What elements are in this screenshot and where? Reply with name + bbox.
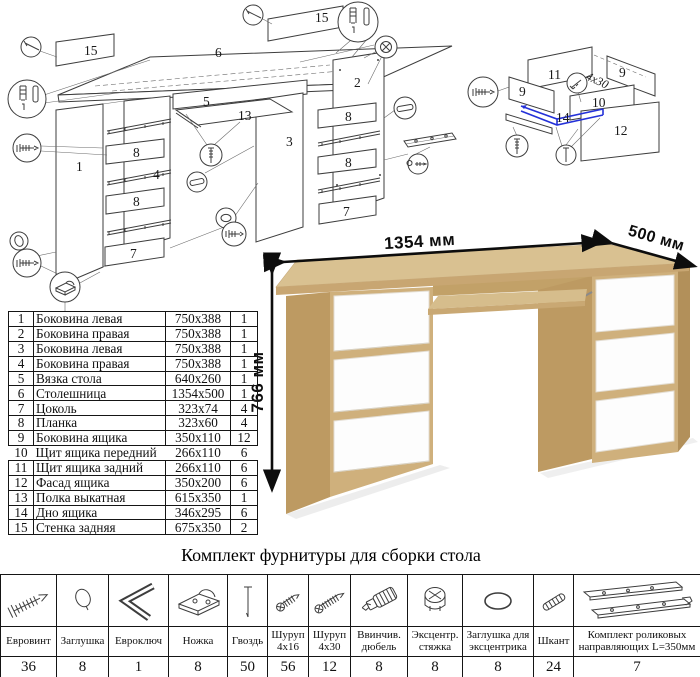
- part-qty: 1: [231, 356, 258, 371]
- part-name: Щит ящика передний: [34, 446, 166, 461]
- confirmat-screw-icon: [3, 577, 55, 625]
- hardware-qty: 50: [228, 657, 268, 677]
- part-qty: 6: [231, 475, 258, 490]
- hardware-name: Заглушка: [57, 627, 109, 657]
- part-number: 10: [9, 446, 34, 461]
- part-number: 13: [9, 490, 34, 505]
- parts-list-row: 4 Боковина правая 750x388 1: [9, 356, 258, 371]
- hardware-qty: 12: [309, 657, 351, 677]
- drawer-slides-icon: [576, 577, 699, 625]
- parts-list-row: 14 Дно ящика 346x295 6: [9, 505, 258, 520]
- callout-screw-4x30: [567, 73, 587, 93]
- part-label-13: 13: [238, 108, 252, 123]
- part-name: Щит ящика задний: [34, 460, 166, 475]
- part-name: Боковина правая: [34, 326, 166, 341]
- part-number: 2: [9, 326, 34, 341]
- hardware-qty: 36: [1, 657, 57, 677]
- foot-icon: [171, 577, 226, 625]
- callout-foot: [50, 272, 80, 302]
- part-size: 750x388: [166, 326, 231, 341]
- callout-dowel-cap: [8, 80, 46, 118]
- part-size: 640x260: [166, 371, 231, 386]
- part-label-8-l1: 8: [133, 145, 140, 160]
- part-name: Боковина левая: [34, 341, 166, 356]
- callout-nail-top: [243, 5, 263, 25]
- hardware-qty-row: 36 8 1 8 50 56 12 8 8 8 24 7: [1, 657, 700, 677]
- part-label-11: 11: [548, 67, 561, 82]
- part-qty: 4: [231, 416, 258, 431]
- small-screw-icon: [270, 577, 307, 625]
- part-qty: 4: [231, 401, 258, 416]
- part-name: Вязка стола: [34, 371, 166, 386]
- part-label-12: 12: [614, 123, 628, 138]
- cam-cap-icon: [465, 577, 532, 625]
- part-number: 8: [9, 416, 34, 431]
- hardware-qty: 7: [574, 657, 700, 677]
- part-number: 1: [9, 312, 34, 327]
- part-size: 323x74: [166, 401, 231, 416]
- part-number: 11: [9, 460, 34, 475]
- callout-cap-2: [10, 232, 28, 250]
- callout-confirmat-drawer: [468, 77, 498, 107]
- callout-confirmat-1: [13, 134, 41, 162]
- hardware-qty: 1: [109, 657, 169, 677]
- part-qty: 2: [231, 520, 258, 535]
- part-name: Полка выкатная: [34, 490, 166, 505]
- callout-confirmat-3: [222, 222, 246, 246]
- part-label-9-right: 9: [619, 65, 626, 80]
- parts-list-row: 2 Боковина правая 750x388 1: [9, 326, 258, 341]
- left-pedestal-parts: [56, 96, 171, 287]
- part-label-7-r: 7: [343, 204, 350, 219]
- parts-list-row: 5 Вязка стола 640x260 1: [9, 371, 258, 386]
- part-size: 350x110: [166, 431, 231, 446]
- parts-list-row: 1 Боковина левая 750x388 1: [9, 312, 258, 327]
- part-number: 6: [9, 386, 34, 401]
- middle-parts: [173, 80, 307, 242]
- hardware-kit-table: Евровинт Заглушка Евроключ Ножка Гвоздь …: [0, 574, 700, 677]
- part-label-8-r2: 8: [345, 155, 352, 170]
- hardware-name: Эксцентр. стяжка: [408, 627, 463, 657]
- hardware-name: Евроключ: [109, 627, 169, 657]
- long-screw-icon: [311, 577, 349, 625]
- part-size: 675x350: [166, 520, 231, 535]
- hardware-kit-title: Комплект фурнитуры для сборки стола: [0, 545, 662, 566]
- hardware-name: Шкант: [534, 627, 574, 657]
- part-number: 15: [9, 520, 34, 535]
- part-size: 750x388: [166, 312, 231, 327]
- parts-list-row: 7 Цоколь 323x74 4: [9, 401, 258, 416]
- part-number: 3: [9, 341, 34, 356]
- part-name: Боковина правая: [34, 356, 166, 371]
- parts-list-row: 12 Фасад ящика 350x200 6: [9, 475, 258, 490]
- part-name: Стенка задняя: [34, 520, 166, 535]
- part-label-8-r1: 8: [345, 109, 352, 124]
- parts-list-row: 9 Боковина ящика 350x110 12: [9, 431, 258, 446]
- part-label-10: 10: [592, 95, 606, 110]
- part-size: 323x60: [166, 416, 231, 431]
- part-name: Цоколь: [34, 401, 166, 416]
- cam-lock-icon: [410, 577, 461, 625]
- parts-list-row: 8 Планка 323x60 4: [9, 416, 258, 431]
- callout-dowel-drawer: [506, 135, 528, 157]
- drawer-assembly-diagram: 4х30 11 9 9 10 14 12: [440, 0, 700, 195]
- part-label-15-left: 15: [84, 43, 98, 58]
- hardware-qty: 8: [351, 657, 408, 677]
- part-number: 14: [9, 505, 34, 520]
- part-number: 4: [9, 356, 34, 371]
- callout-nail: [21, 37, 41, 57]
- part-qty: 6: [231, 446, 258, 461]
- wood-strip: [506, 114, 552, 134]
- nail-icon: [230, 577, 266, 625]
- part-size: 346x295: [166, 505, 231, 520]
- part-size: 750x388: [166, 356, 231, 371]
- parts-list: 1 Боковина левая 750x388 1 2 Боковина пр…: [8, 311, 258, 535]
- part-qty: 1: [231, 341, 258, 356]
- part-name: Фасад ящика: [34, 475, 166, 490]
- hardware-icons-row: [1, 575, 700, 627]
- part-qty: 1: [231, 371, 258, 386]
- part-qty: 1: [231, 490, 258, 505]
- callout-screw-right: [407, 154, 428, 174]
- hardware-name: Шуруп 4х16: [268, 627, 309, 657]
- hardware-name: Комплект роликовых направляющих L=350мм: [574, 627, 700, 657]
- part-label-14: 14: [556, 110, 570, 125]
- part-qty: 1: [231, 386, 258, 401]
- parts-list-row: 10 Щит ящика передний 266x110 6: [9, 446, 258, 461]
- parts-list-row: 13 Полка выкатная 615x350 1: [9, 490, 258, 505]
- hardware-qty: 8: [463, 657, 534, 677]
- hardware-qty: 56: [268, 657, 309, 677]
- part-size: 615x350: [166, 490, 231, 505]
- part-qty: 6: [231, 460, 258, 475]
- part-number: 12: [9, 475, 34, 490]
- part-qty: 1: [231, 312, 258, 327]
- part-name: Планка: [34, 416, 166, 431]
- desk-render: 1354 мм 500 мм 766 мм: [250, 225, 700, 545]
- dim-width-label: 1354 мм: [384, 230, 456, 253]
- hardware-qty: 8: [57, 657, 109, 677]
- part-label-15-right: 15: [315, 10, 329, 25]
- part-label-9-left: 9: [519, 84, 526, 99]
- part-label-3: 3: [286, 134, 293, 149]
- part-number: 7: [9, 401, 34, 416]
- part-qty: 1: [231, 326, 258, 341]
- cap-icon: [59, 577, 107, 625]
- hardware-qty: 8: [169, 657, 228, 677]
- callout-screw-vertical: [200, 144, 222, 166]
- hex-key-icon: [111, 577, 167, 625]
- part-name: Дно ящика: [34, 505, 166, 520]
- part-size: 1354x500: [166, 386, 231, 401]
- part-label-5: 5: [203, 94, 210, 109]
- hardware-names-row: Евровинт Заглушка Евроключ Ножка Гвоздь …: [1, 627, 700, 657]
- part-number: 9: [9, 431, 34, 446]
- callout-dowel-pin-right: [394, 97, 416, 119]
- part-label-1: 1: [76, 159, 83, 174]
- hardware-name: Гвоздь: [228, 627, 268, 657]
- hardware-qty: 8: [408, 657, 463, 677]
- part-name: Боковина левая: [34, 312, 166, 327]
- hardware-name: Ножка: [169, 627, 228, 657]
- part-name: Столешница: [34, 386, 166, 401]
- hardware-name: Ввинчив. дюбель: [351, 627, 408, 657]
- part-number: 5: [9, 371, 34, 386]
- part-label-7-l: 7: [130, 246, 137, 261]
- part-size: 266x110: [166, 446, 231, 461]
- part-size: 266x110: [166, 460, 231, 475]
- hardware-name: Шуруп 4х30: [309, 627, 351, 657]
- part-qty: 12: [231, 431, 258, 446]
- part-label-4: 4: [153, 167, 160, 182]
- part-name: Боковина ящика: [34, 431, 166, 446]
- callout-confirmat-2: [13, 249, 41, 277]
- back-wall-right: [268, 6, 343, 41]
- part-size: 350x200: [166, 475, 231, 490]
- hardware-qty: 24: [534, 657, 574, 677]
- part-label-8-l2: 8: [133, 194, 140, 209]
- parts-list-row: 15 Стенка задняя 675x350 2: [9, 520, 258, 535]
- screw-dowel-icon: [353, 577, 406, 625]
- right-pedestal-parts: [318, 52, 456, 224]
- callout-dowel-cap-top: [338, 2, 378, 42]
- parts-list-row: 3 Боковина левая 750x388 1: [9, 341, 258, 356]
- hardware-name: Заглушка для эксцентрика: [463, 627, 534, 657]
- wood-dowel-icon: [536, 577, 572, 625]
- part-label-6: 6: [215, 45, 222, 60]
- hardware-name: Евровинт: [1, 627, 57, 657]
- callout-cam-lock: [375, 36, 397, 58]
- callout-nail-drawer: [556, 145, 576, 165]
- assembly-instruction-sheet: 15 15 6 5 13 1 2 3 4 8 8 7 8 8 7: [0, 0, 700, 677]
- part-qty: 6: [231, 505, 258, 520]
- part-label-2: 2: [354, 75, 361, 90]
- parts-list-row: 6 Столешница 1354x500 1: [9, 386, 258, 401]
- part-size: 750x388: [166, 341, 231, 356]
- parts-list-row: 11 Щит ящика задний 266x110 6: [9, 460, 258, 475]
- callout-dowel-pin: [187, 172, 207, 192]
